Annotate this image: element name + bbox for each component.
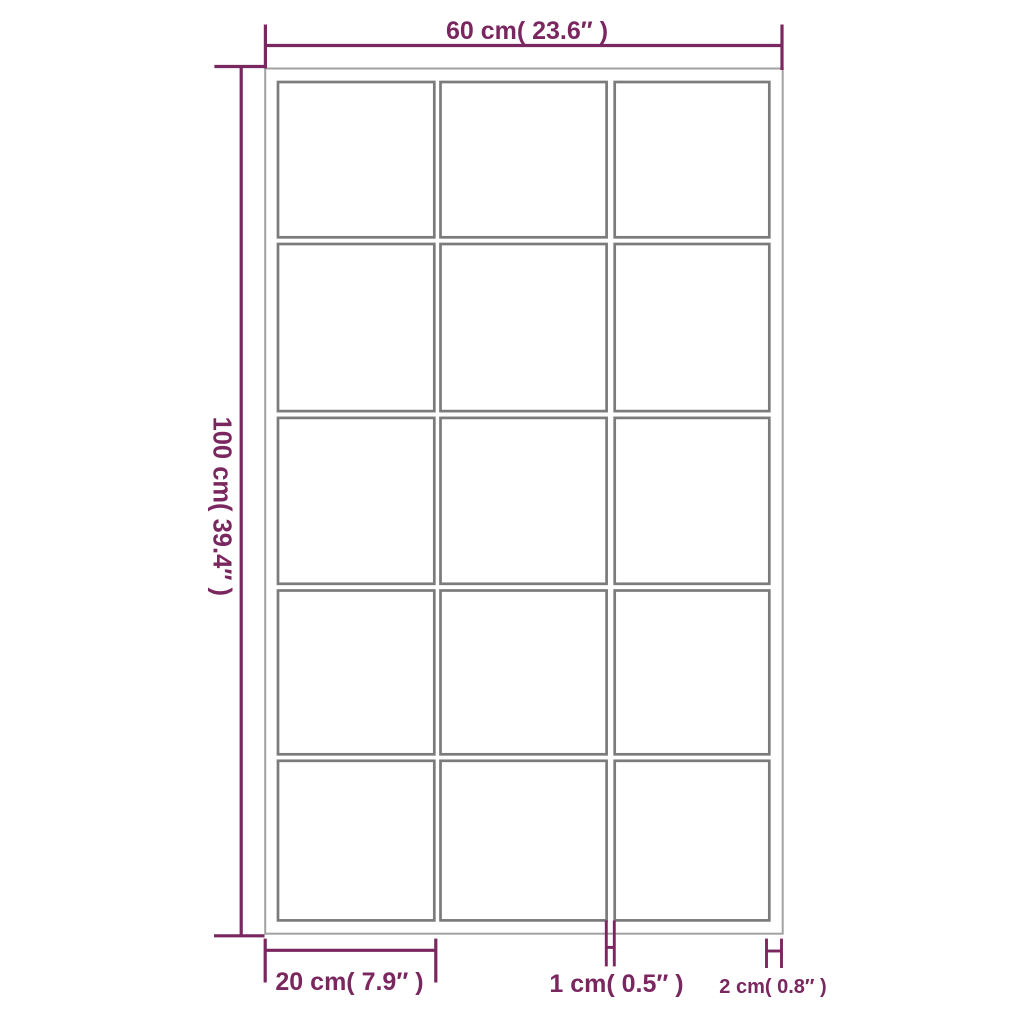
svg-text:1 cm( 0.5″ ): 1 cm( 0.5″ ) (549, 970, 683, 998)
svg-text:2 cm( 0.8″ ): 2 cm( 0.8″ ) (719, 976, 826, 998)
svg-text:20 cm( 7.9″ ): 20 cm( 7.9″ ) (275, 968, 423, 996)
svg-text:100 cm( 39.4″ ): 100 cm( 39.4″ ) (208, 417, 236, 596)
svg-text:60 cm( 23.6″ ): 60 cm( 23.6″ ) (446, 17, 608, 45)
